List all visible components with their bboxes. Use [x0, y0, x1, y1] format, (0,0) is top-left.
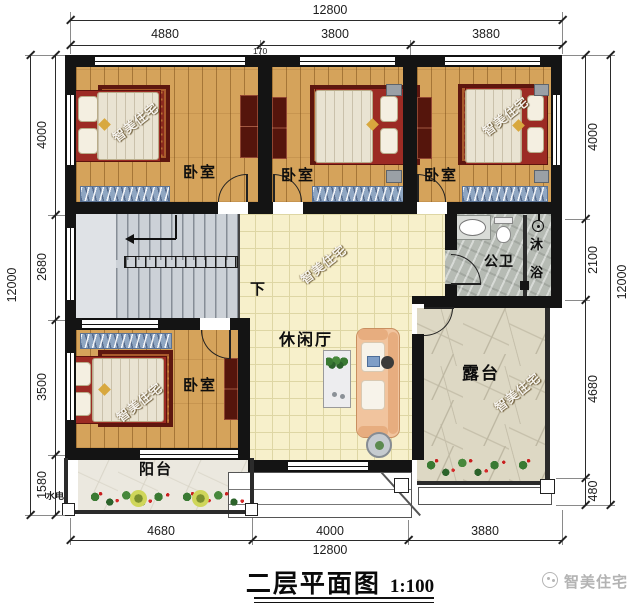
terrace-lower-step — [418, 487, 552, 505]
wall-hall-terrace — [412, 334, 424, 460]
toilet-tank — [494, 217, 513, 224]
terrace-parapet — [545, 308, 550, 485]
sofa-figure — [381, 356, 394, 369]
door-leaf — [246, 174, 248, 202]
wall-right — [551, 55, 562, 308]
dim-ext — [565, 219, 590, 220]
drawing-title-row: 二层平面图 1:100 — [230, 564, 450, 594]
window — [445, 55, 540, 67]
window — [82, 318, 158, 330]
wall-bedrooms-bottom — [303, 202, 417, 214]
window — [300, 55, 395, 67]
sofa-armrest — [358, 329, 388, 340]
stair-flight-lower — [116, 268, 238, 318]
brand-logo-dot — [552, 579, 555, 582]
dim-top-seg1: 4880 — [125, 27, 205, 41]
door-leaf — [417, 174, 419, 202]
dim-line — [70, 540, 562, 541]
stair-direction-vline — [175, 215, 177, 239]
window — [65, 353, 76, 420]
bedroom-label: 卧室 — [183, 161, 217, 182]
window — [65, 228, 76, 300]
brand-name: 智美住宅 — [564, 571, 628, 592]
wall-hall-terrace — [412, 296, 424, 304]
sofa-cushion — [361, 380, 385, 410]
window — [95, 55, 245, 67]
dim-top-seg3: 3880 — [446, 27, 526, 41]
toilet-bowl — [496, 226, 511, 243]
dim-right-seg1: 4000 — [586, 107, 600, 167]
balcony-label: 阳台 — [139, 458, 173, 479]
stair-railing — [124, 256, 238, 268]
dim-ext — [408, 520, 409, 545]
dim-ext — [48, 320, 65, 321]
dim-line — [610, 55, 611, 505]
bed-pillow — [78, 128, 98, 154]
stair-arrow-icon — [125, 234, 134, 244]
balcony-planter — [130, 490, 147, 507]
balcony-flowers — [84, 486, 246, 512]
bed-pillow — [78, 96, 98, 122]
wall-bedrooms-bottom — [248, 202, 273, 214]
step-post — [394, 478, 409, 493]
bedroom-label: 卧室 — [281, 164, 315, 185]
drawing-title: 二层平面图 — [246, 564, 381, 600]
dim-bottom-seg2: 4000 — [290, 524, 370, 538]
balcony-planter — [192, 490, 209, 507]
dim-ext — [565, 300, 590, 301]
balcony-post — [245, 503, 258, 516]
dim-left-seg1: 4000 — [35, 105, 49, 165]
leisure-hall-label: 休闲厅 — [279, 326, 333, 350]
window — [288, 460, 368, 472]
bed-duvet — [315, 90, 373, 163]
nightstand — [534, 170, 549, 183]
bed-pillow — [380, 96, 398, 122]
shower-label-char: 沐 — [530, 234, 543, 253]
dim-line — [70, 20, 562, 21]
dim-bottom-overall: 12800 — [286, 543, 374, 557]
title-underline — [254, 597, 434, 603]
terrace-parapet — [417, 481, 550, 485]
shower-head-stem — [538, 214, 540, 221]
dim-right-seg3: 4680 — [586, 359, 600, 419]
window — [65, 95, 76, 165]
dim-bottom-seg1: 4680 — [121, 524, 201, 538]
shower-head-dot — [537, 225, 540, 228]
blue-rug — [80, 333, 172, 349]
drawing-scale: 1:100 — [390, 576, 434, 598]
stairs-down-label: 下 — [250, 278, 267, 299]
nightstand — [386, 84, 402, 96]
wall-bedrooms-bottom — [65, 202, 218, 214]
wardrobe — [417, 97, 432, 159]
balcony-parapet — [64, 510, 254, 514]
wall-bathroom-left — [445, 214, 457, 250]
terrace-label: 露台 — [462, 359, 500, 384]
brand-logo-icon — [542, 572, 558, 588]
wall-bedrooms-bottom — [447, 202, 562, 214]
bedroom-label: 卧室 — [424, 164, 458, 185]
blue-rug — [80, 186, 170, 202]
stair-landing — [76, 214, 116, 318]
stair-flight-upper — [116, 214, 238, 260]
nightstand — [386, 170, 402, 183]
window — [551, 95, 562, 165]
step-line — [229, 489, 411, 490]
dim-left-seg2: 2680 — [35, 237, 49, 297]
dim-line — [30, 55, 31, 515]
dim-right-seg4: 480 — [586, 461, 600, 521]
door-leaf — [273, 174, 275, 202]
stair-edge-line — [238, 214, 240, 318]
cabinet-plant — [326, 354, 348, 372]
wardrobe — [272, 97, 287, 159]
dim-left-overall: 12000 — [5, 255, 19, 315]
stair-direction-line — [134, 238, 176, 240]
floor-plan-canvas: 卧室 卧室 卧室 卧室 休闲厅 公卫 下 沐 浴 露台 阳台 水电 智美住宅 智… — [0, 0, 640, 612]
wardrobe — [240, 95, 258, 158]
dim-top-minor: 170 — [253, 46, 267, 56]
side-table-plant — [375, 441, 384, 450]
terrace-post — [540, 479, 555, 494]
dim-ext — [48, 215, 65, 216]
wall-bedroom4-right — [238, 330, 250, 460]
dim-right-overall: 12000 — [615, 252, 629, 312]
wall-bed2-bed3 — [403, 55, 417, 202]
sink-basin — [459, 219, 486, 236]
blue-rug — [462, 186, 548, 202]
dim-left-seg4: 1580 — [35, 455, 49, 515]
dim-line — [70, 45, 562, 46]
shower-door-block — [520, 281, 529, 290]
shower-label-char: 浴 — [530, 262, 543, 281]
brand-logo-dot — [547, 577, 550, 580]
door-leaf — [424, 307, 454, 309]
dim-left-seg3: 3500 — [35, 357, 49, 417]
blue-rug — [312, 186, 404, 202]
sofa-tray — [367, 356, 380, 367]
wall-bed1-bed2 — [258, 55, 272, 202]
bed-pillow — [380, 128, 398, 154]
cabinet-item — [340, 394, 345, 399]
dim-line — [55, 55, 56, 515]
nightstand — [534, 84, 549, 96]
wall-bathroom-left — [445, 284, 457, 296]
dim-top-seg2: 3800 — [295, 27, 375, 41]
dim-ext — [48, 455, 65, 456]
dim-top-overall: 12800 — [286, 3, 374, 17]
dim-bottom-seg3: 3880 — [445, 524, 525, 538]
sofa-backrest — [388, 332, 398, 434]
wardrobe — [224, 358, 238, 420]
wall-stairs-bottom — [230, 318, 250, 330]
bed-pillow — [527, 127, 544, 153]
cabinet-item — [332, 392, 337, 397]
bedroom-label: 卧室 — [183, 374, 217, 395]
bathroom-label: 公卫 — [484, 251, 514, 271]
dim-right-seg2: 2100 — [586, 230, 600, 290]
door-leaf — [451, 283, 481, 285]
door-leaf — [229, 330, 231, 359]
